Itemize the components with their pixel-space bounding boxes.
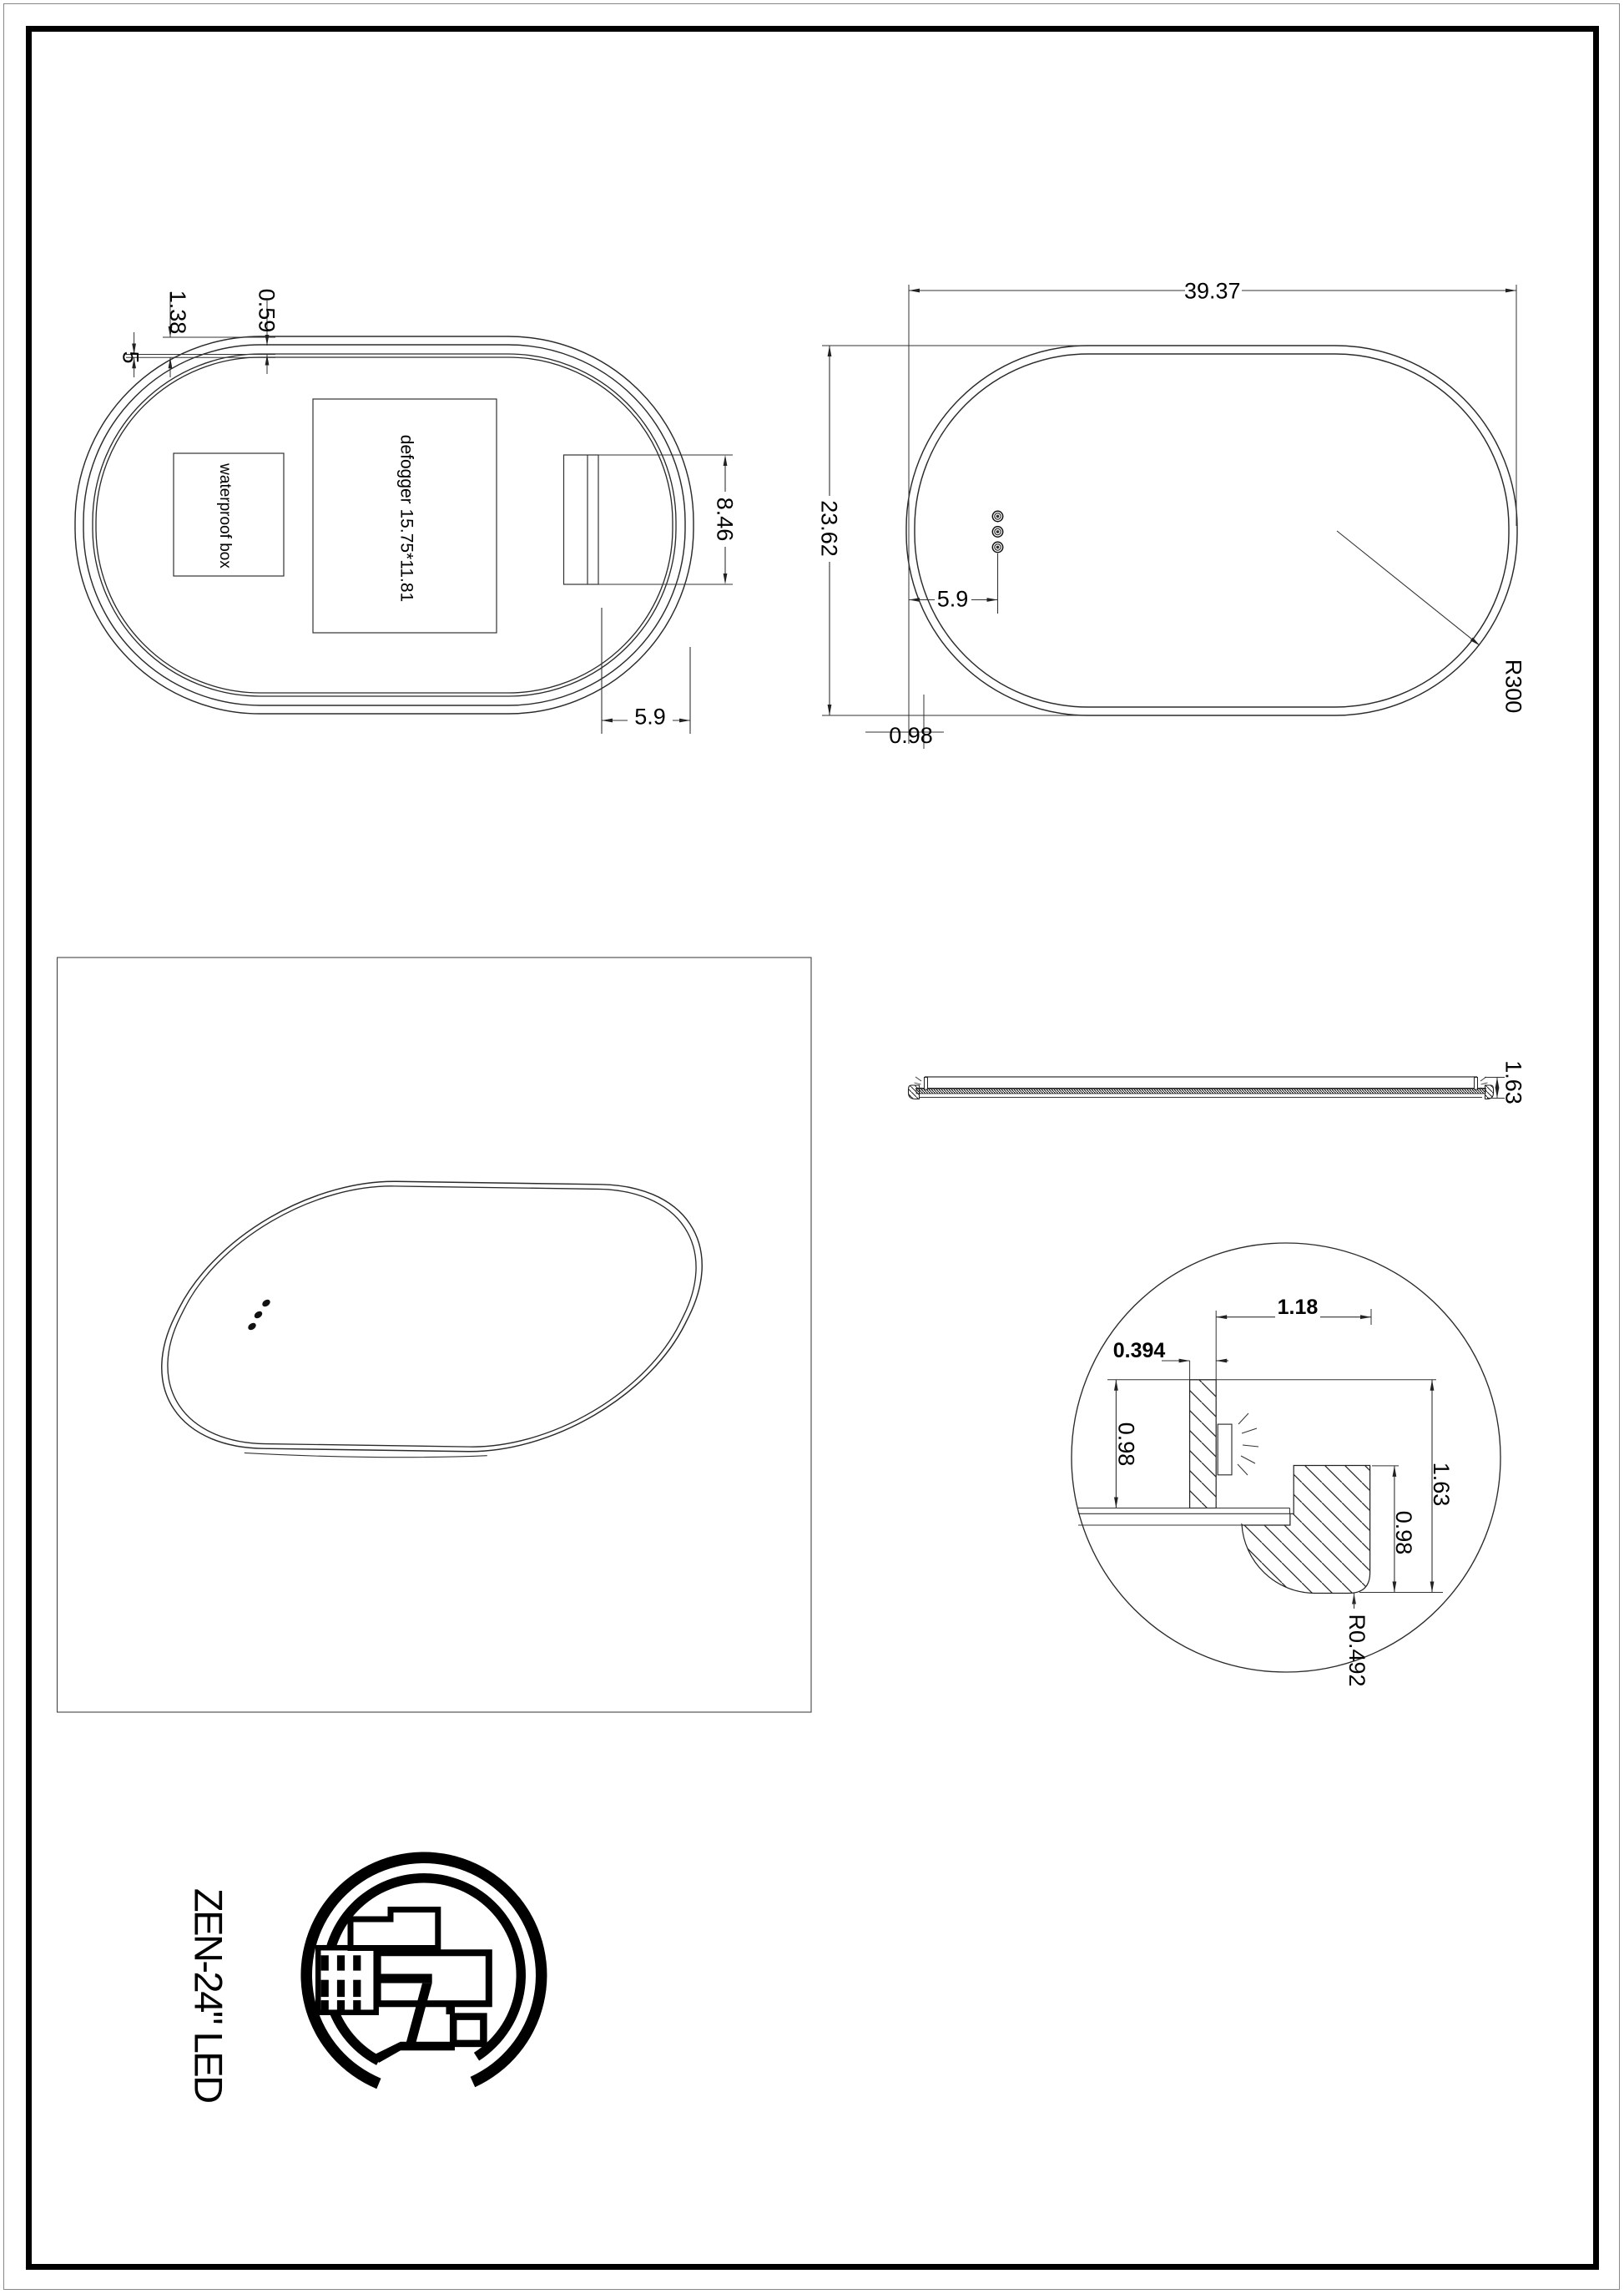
svg-text:5: 5 <box>118 351 143 363</box>
svg-text:waterproof box: waterproof box <box>216 462 234 568</box>
svg-text:R300: R300 <box>1500 659 1526 714</box>
svg-text:5.9: 5.9 <box>937 587 969 612</box>
svg-text:ZEN-24" LED: ZEN-24" LED <box>187 1888 231 2102</box>
svg-text:1.38: 1.38 <box>165 291 190 335</box>
svg-text:0.98: 0.98 <box>889 723 933 748</box>
svg-text:23.62: 23.62 <box>816 500 841 557</box>
svg-text:0.59: 0.59 <box>254 289 279 333</box>
svg-text:0.98: 0.98 <box>1391 1511 1416 1555</box>
svg-text:5.9: 5.9 <box>634 705 666 730</box>
svg-text:0.98: 0.98 <box>1113 1422 1138 1467</box>
svg-text:8.46: 8.46 <box>712 498 737 542</box>
svg-text:0.394: 0.394 <box>1113 1339 1166 1362</box>
svg-text:defogger 15.75*11.81: defogger 15.75*11.81 <box>397 435 416 602</box>
svg-text:1.18: 1.18 <box>1278 1296 1319 1319</box>
svg-text:1.63: 1.63 <box>1429 1463 1454 1507</box>
svg-text:R0.492: R0.492 <box>1344 1614 1369 1686</box>
svg-text:1.63: 1.63 <box>1500 1060 1526 1104</box>
svg-text:39.37: 39.37 <box>1184 279 1241 304</box>
